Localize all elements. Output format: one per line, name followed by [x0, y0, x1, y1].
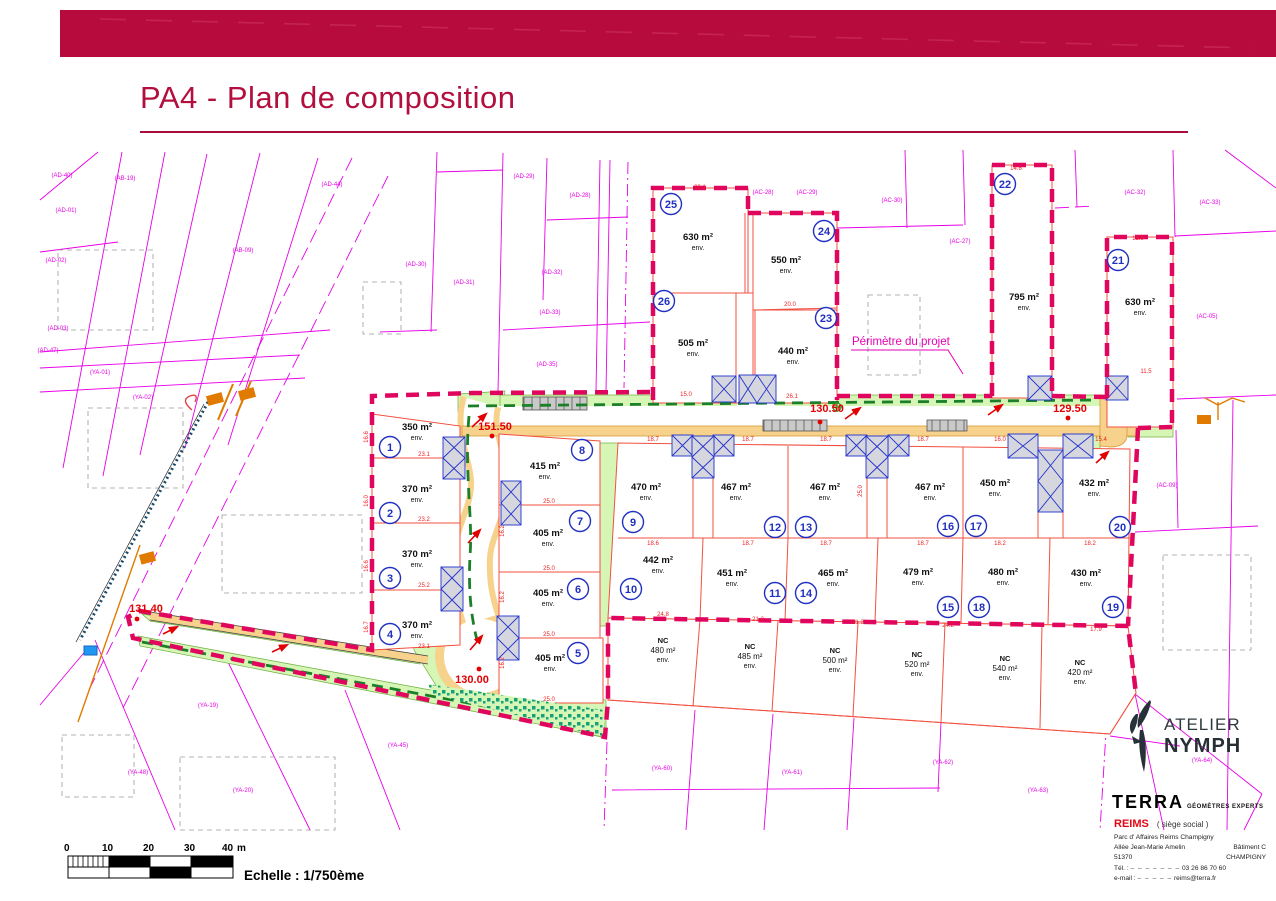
office-email-label: e-mail :: [1114, 875, 1136, 882]
env-lot-3: env.: [411, 562, 424, 569]
area-lot-18: 480 m²: [988, 567, 1018, 578]
lot-15-marker: 15: [942, 602, 954, 614]
cad-10: (AD-31): [453, 280, 474, 286]
nc-5: NC: [1000, 654, 1011, 663]
lot-26-marker: 26: [658, 296, 670, 308]
area-lot-11: 451 m²: [717, 568, 747, 579]
area-lot-5: 405 m²: [535, 653, 565, 664]
water-feature: [84, 646, 97, 655]
cad-26: (YA-20): [233, 788, 253, 794]
env-lot-17: env.: [989, 491, 1002, 498]
dim-33: 16.0: [364, 495, 370, 507]
area-lot-24: 550 m²: [771, 255, 801, 266]
env-lot-2: env.: [411, 497, 424, 504]
env-lot-7: env.: [542, 541, 555, 548]
dim-23: 23.1: [694, 185, 706, 191]
area-lot-23: 440 m²: [778, 346, 808, 357]
env-lot-8: env.: [539, 474, 552, 481]
env-lot-18: env.: [997, 580, 1010, 587]
measurement-130-50: 130.50: [810, 403, 844, 415]
cad-9: (AD-30): [405, 262, 426, 268]
cad-14: (AD-29): [513, 174, 534, 180]
office-town: CHAMPIGNY: [1226, 853, 1266, 863]
red-hook-symbol: [185, 395, 196, 410]
scale-tick-40: 40: [222, 843, 234, 854]
cad-23: (AC-09): [1156, 483, 1177, 489]
dim-32: 16.6: [364, 431, 370, 443]
env-lot-10: env.: [652, 568, 665, 575]
cad-13: (AD-35): [536, 362, 557, 368]
area-lot-9: 470 m²: [631, 482, 661, 493]
env-lot-22: env.: [1018, 305, 1031, 312]
cad-33: (AD-47): [37, 348, 58, 354]
cad-19: (AC-32): [1124, 190, 1145, 196]
env-lot-16: env.: [924, 495, 937, 502]
dim-22: 20.0: [784, 302, 796, 308]
scale-tick-10: 10: [102, 843, 114, 854]
env-lot-14: env.: [827, 581, 840, 588]
office-email-mask: – – – – –: [1137, 875, 1172, 882]
nc-3: NC: [830, 646, 841, 655]
area-lot-4: 370 m²: [402, 620, 432, 631]
env-lot-23: env.: [787, 359, 800, 366]
dim-26: 11.5: [1140, 369, 1152, 375]
area-lot-14: 465 m²: [818, 568, 848, 579]
nc-1: NC: [658, 636, 669, 645]
cad-18: (AC-30): [881, 198, 902, 204]
env-lot-6: env.: [542, 601, 555, 608]
area-lot-15: 479 m²: [903, 567, 933, 578]
dim-11: 18.7: [917, 437, 929, 443]
dim-28: 21.2: [752, 617, 764, 623]
page: { "header": { "title": "PA4 - Plan de co…: [0, 0, 1276, 901]
terra-subtitle: GÉOMÈTRES EXPERTS: [1187, 804, 1264, 810]
area-lot-17: 450 m²: [980, 478, 1010, 489]
env-lot-11: env.: [726, 581, 739, 588]
cad-2: (AD-44): [321, 182, 342, 188]
dim-30: 24.2: [942, 623, 954, 629]
area-lot-13: 467 m²: [810, 482, 840, 493]
lot-20-marker: 20: [1114, 522, 1126, 534]
lot-9-marker: 9: [630, 517, 636, 529]
area-lot-19: 430 m²: [1071, 568, 1101, 579]
cad-15: (AD-28): [569, 193, 590, 199]
measurement-130-00: 130.00: [455, 674, 489, 686]
office-email: reims@terra.fr: [1174, 875, 1216, 882]
lot-23-marker: 23: [820, 313, 832, 325]
cad-3: (AD-01): [55, 208, 76, 214]
office-addr2-left: Allée Jean-Marie Amelin: [1114, 843, 1185, 853]
terra-name: TERRA: [1112, 792, 1184, 813]
dim-3: 23.1: [418, 644, 430, 650]
nc-4-env: env.: [911, 671, 924, 678]
dim-13: 15.4: [1095, 437, 1107, 443]
office-addr2-right: Bâtiment C: [1233, 843, 1266, 853]
lot-6-marker: 6: [575, 584, 581, 596]
dim-15: 18.7: [742, 541, 754, 547]
cad-22: (AC-05): [1196, 314, 1217, 320]
cad-12: (AD-33): [539, 310, 560, 316]
nc-1-env: env.: [657, 657, 670, 664]
dim-36: 16.2: [500, 525, 506, 537]
nc-5-area: 540 m²: [993, 664, 1018, 673]
nc-4-area: 520 m²: [905, 660, 930, 669]
dim-35: 16.7: [364, 621, 370, 633]
env-lot-15: env.: [912, 580, 925, 587]
dim-10: 18.7: [820, 437, 832, 443]
cad-27: (YA-45): [388, 743, 408, 749]
scale-tick-30: 30: [184, 843, 196, 854]
dim-38: 16.2: [500, 657, 506, 669]
dim-14: 18.6: [647, 541, 659, 547]
nc-6-area: 420 m²: [1068, 668, 1093, 677]
lot-5-marker: 5: [575, 648, 581, 660]
dim-17: 18.7: [917, 541, 929, 547]
cad-16: (AC-28): [752, 190, 773, 196]
area-lot-16: 467 m²: [915, 482, 945, 493]
dim-24: 14.8: [1010, 166, 1022, 172]
office-city: REIMS: [1114, 816, 1149, 833]
lot-2-marker: 2: [387, 508, 393, 520]
lot-3-marker: 3: [387, 573, 393, 585]
lot-11-marker: 11: [769, 588, 781, 600]
atelier-nymph-logo: ATELIER NYMPH: [1126, 698, 1272, 774]
measurement-129-50: 129.50: [1053, 403, 1087, 415]
env-lot-26: env.: [687, 351, 700, 358]
cad-11: (AD-32): [541, 270, 562, 276]
lot-16-marker: 16: [942, 521, 954, 533]
dim-27: 24.8: [657, 612, 669, 618]
lot-10-marker: 10: [625, 584, 637, 596]
env-lot-1: env.: [411, 435, 424, 442]
office-tel-mask: – – – – – – –: [1131, 865, 1181, 872]
nc-2-env: env.: [744, 663, 757, 670]
nc-6: NC: [1075, 658, 1086, 667]
measurement-131-40: 131.40: [129, 603, 163, 615]
dim-2: 25.2: [418, 583, 430, 589]
scale-unit: m: [237, 843, 246, 854]
dim-25: 15.9: [1132, 236, 1144, 242]
area-lot-12: 467 m²: [721, 482, 751, 493]
scale-bar: [68, 856, 233, 878]
env-lot-24: env.: [780, 268, 793, 275]
env-lot-9: env.: [640, 495, 653, 502]
cad-4: (AD-02): [45, 258, 66, 264]
cad-24: (YA-19): [198, 703, 218, 709]
area-lot-7: 405 m²: [533, 528, 563, 539]
cad-6: (AB-09): [233, 248, 254, 254]
nc-6-env: env.: [1074, 679, 1087, 686]
lot-12-marker: 12: [769, 522, 781, 534]
cad-20: (AC-33): [1199, 200, 1220, 206]
dim-34: 16.6: [364, 560, 370, 572]
cad-0: (AD-40): [51, 173, 72, 179]
area-lot-2: 370 m²: [402, 484, 432, 495]
area-lot-8: 415 m²: [530, 461, 560, 472]
dim-37: 16.2: [500, 591, 506, 603]
terra-logo: TERRA GÉOMÈTRES EXPERTS: [1112, 792, 1272, 813]
measurement-151-50: 151.50: [478, 421, 512, 433]
office-addr1: Parc d' Affaires Reims Champigny: [1114, 833, 1266, 843]
scale-tick-0: 0: [64, 843, 70, 854]
dim-21: 26.1: [786, 394, 798, 400]
lot-21-marker: 21: [1112, 255, 1124, 267]
env-lot-25: env.: [692, 245, 705, 252]
dim-8: 18.7: [647, 437, 659, 443]
dim-16: 18.7: [820, 541, 832, 547]
dim-5: 25.0: [543, 566, 555, 572]
dim-6: 25.0: [543, 632, 555, 638]
lot-18-marker: 18: [973, 602, 985, 614]
dim-1: 23.2: [418, 517, 430, 523]
dim-39: 25.0: [858, 485, 864, 497]
cad-29: (YA-61): [782, 770, 802, 776]
area-lot-3: 370 m²: [402, 549, 432, 560]
cad-1: (AB-19): [115, 176, 136, 182]
env-lot-19: env.: [1080, 581, 1093, 588]
dim-4: 25.0: [543, 499, 555, 505]
cad-17: (AC-29): [796, 190, 817, 196]
office-tel-label: Tél. :: [1114, 865, 1129, 872]
cad-7: (YA-01): [90, 370, 110, 376]
cad-30: (YA-62): [933, 760, 953, 766]
area-lot-20: 432 m²: [1079, 478, 1109, 489]
lot-4-marker: 4: [387, 629, 394, 641]
area-lot-26: 505 m²: [678, 338, 708, 349]
env-lot-20: env.: [1088, 491, 1101, 498]
area-lot-22: 795 m²: [1009, 292, 1039, 303]
office-address-block: REIMS ( siège social ) Parc d' Affaires …: [1114, 816, 1266, 884]
cad-28: (YA-60): [652, 766, 672, 772]
nc-3-env: env.: [829, 667, 842, 674]
dim-0: 23.1: [418, 452, 430, 458]
nymph-text: NYMPH: [1164, 735, 1241, 758]
lot-1-marker: 1: [387, 442, 393, 454]
dim-12: 16.0: [994, 437, 1006, 443]
env-lot-12: env.: [730, 495, 743, 502]
perimeter-label-text: Périmètre du projet: [852, 336, 951, 348]
area-lot-1: 350 m²: [402, 422, 432, 433]
area-lot-10: 442 m²: [643, 555, 673, 566]
site-plan: 151.50 130.50 129.50 130.00 131.40 Périm…: [0, 0, 1276, 901]
atelier-text: ATELIER: [1164, 715, 1241, 735]
cad-8: (YA-02): [133, 395, 153, 401]
env-lot-5: env.: [544, 666, 557, 673]
nc-1-area: 480 m²: [651, 646, 676, 655]
nc-5-env: env.: [999, 675, 1012, 682]
nc-2-area: 485 m²: [738, 652, 763, 661]
cad-25: (YA-48): [128, 770, 148, 776]
lot-13-marker: 13: [800, 522, 812, 534]
scale-label: Echelle : 1/750ème: [244, 868, 365, 883]
dim-7: 25.0: [543, 697, 555, 703]
dim-31: 17.9: [1090, 627, 1102, 633]
env-lot-4: env.: [411, 633, 424, 640]
area-lot-21: 630 m²: [1125, 297, 1155, 308]
dim-20: 15.0: [680, 392, 692, 398]
lot-24-marker: 24: [818, 226, 831, 238]
lot-25-marker: 25: [665, 199, 677, 211]
area-lot-25: 630 m²: [683, 232, 713, 243]
nc-4: NC: [912, 650, 923, 659]
lot-8-marker: 8: [579, 445, 585, 457]
office-tel: 03 26 86 70 60: [1182, 865, 1226, 872]
nc-2: NC: [745, 642, 756, 651]
dim-29: 21.2: [852, 620, 864, 626]
env-lot-13: env.: [819, 495, 832, 502]
office-zip: 51370: [1114, 853, 1132, 863]
cad-21: (AC-27): [949, 239, 970, 245]
dim-19: 18.2: [1084, 541, 1096, 547]
area-lot-6: 405 m²: [533, 588, 563, 599]
lot-17-marker: 17: [970, 521, 982, 533]
dim-9: 18.7: [742, 437, 754, 443]
lot-14-marker: 14: [800, 588, 813, 600]
cad-31: (YA-63): [1028, 788, 1048, 794]
dim-18: 18.2: [994, 541, 1006, 547]
nc-3-area: 500 m²: [823, 656, 848, 665]
cad-5: (AD-03): [47, 326, 68, 332]
atelier-nymph-icon: [1126, 698, 1160, 774]
lot-19-marker: 19: [1107, 602, 1119, 614]
lot-7-marker: 7: [577, 516, 583, 528]
office-hq: ( siège social ): [1157, 819, 1209, 831]
lot-22-marker: 22: [999, 179, 1011, 191]
scale-tick-20: 20: [143, 843, 155, 854]
env-lot-21: env.: [1134, 310, 1147, 317]
